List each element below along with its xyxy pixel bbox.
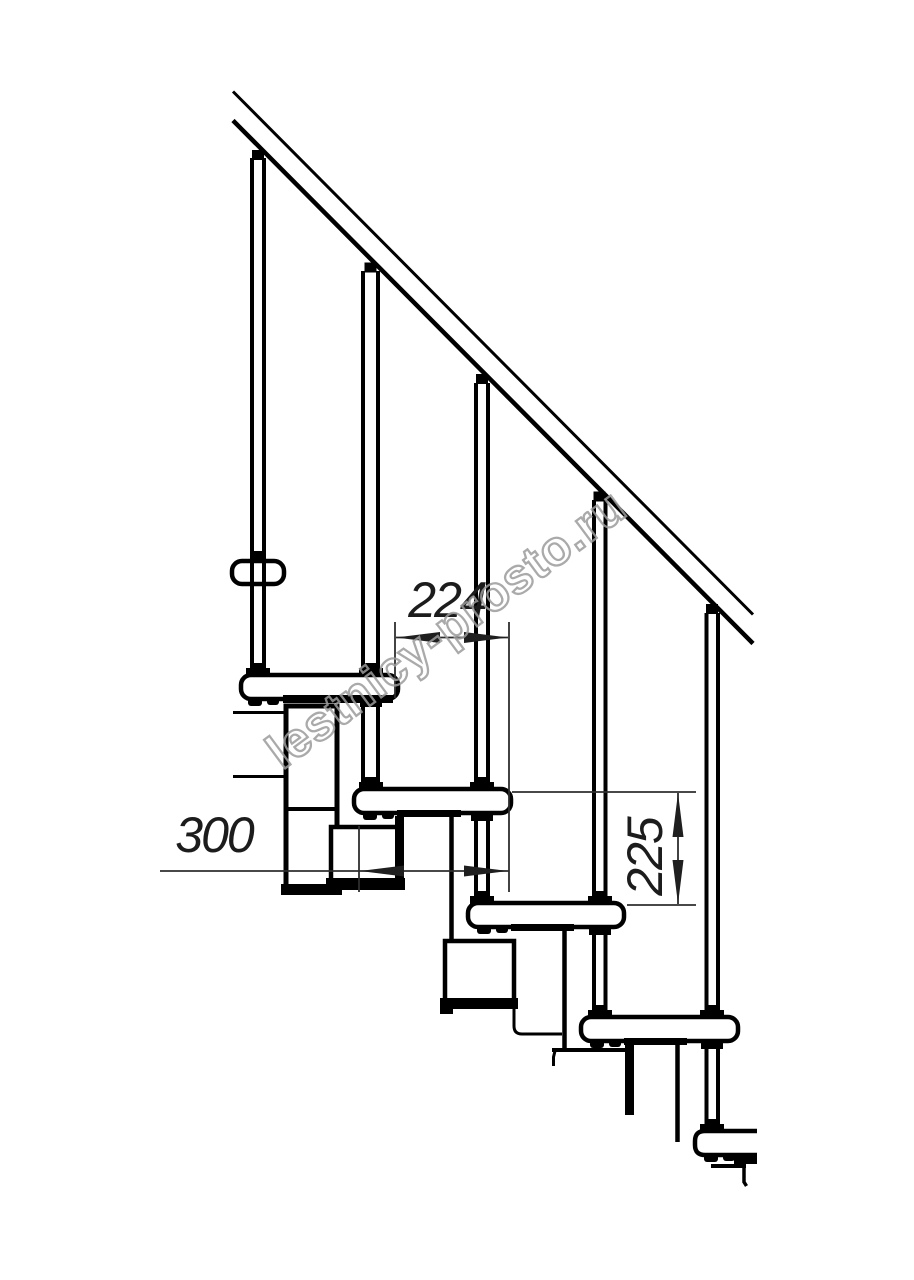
flange [701, 1040, 723, 1049]
flange-dome [705, 1005, 719, 1011]
flange-dome [705, 1119, 719, 1125]
disc-body [232, 561, 284, 584]
tread-3 [468, 903, 624, 927]
baluster-4 [594, 492, 606, 1019]
flange [700, 1010, 724, 1018]
module-break-hook [514, 1007, 562, 1034]
flange-dome [251, 663, 265, 669]
flange [588, 896, 612, 904]
flange-dome [364, 777, 378, 783]
tread-2 [354, 789, 511, 813]
flange [246, 668, 270, 676]
module-box-3 [440, 926, 565, 1050]
tread-5-clipped [695, 1131, 757, 1155]
staircase-drawing: 224 300 225 lestnicy-prosto.ru [0, 0, 914, 1280]
flange [359, 782, 383, 790]
module-corner-block [440, 1004, 453, 1014]
flange-dome [593, 1005, 607, 1011]
module-box-body [331, 827, 400, 885]
handrail-top-line [233, 92, 753, 615]
dimension-depth-value: 300 [175, 807, 255, 863]
flange [470, 896, 494, 904]
module-break-hook [744, 1166, 747, 1186]
module-box-4 [552, 1040, 678, 1142]
flange [700, 1124, 724, 1132]
module-break-hook [554, 1051, 556, 1066]
flange [470, 782, 494, 790]
module-box-2 [326, 813, 452, 940]
module-bottom-band [326, 878, 405, 890]
flange-dome [475, 891, 489, 897]
baluster-5 [706, 604, 718, 1132]
arrowhead-up [673, 793, 684, 837]
flange [589, 926, 611, 935]
watermark-text: lestnicy-prosto.ru [257, 479, 636, 779]
flange [588, 1010, 612, 1018]
flange-dome [475, 777, 489, 783]
handrail-disc [232, 551, 284, 584]
dimension-rise-value: 225 [617, 816, 673, 897]
module-box-body [445, 941, 514, 1005]
mount-under-tread-5 [704, 1153, 757, 1164]
flange [471, 812, 493, 821]
arrowhead-down [673, 860, 684, 904]
flange-dome [593, 891, 607, 897]
baluster-1 [252, 150, 264, 676]
module-box-5 [711, 1166, 747, 1186]
module-right-bar [625, 1042, 634, 1115]
tread-4 [581, 1017, 738, 1041]
